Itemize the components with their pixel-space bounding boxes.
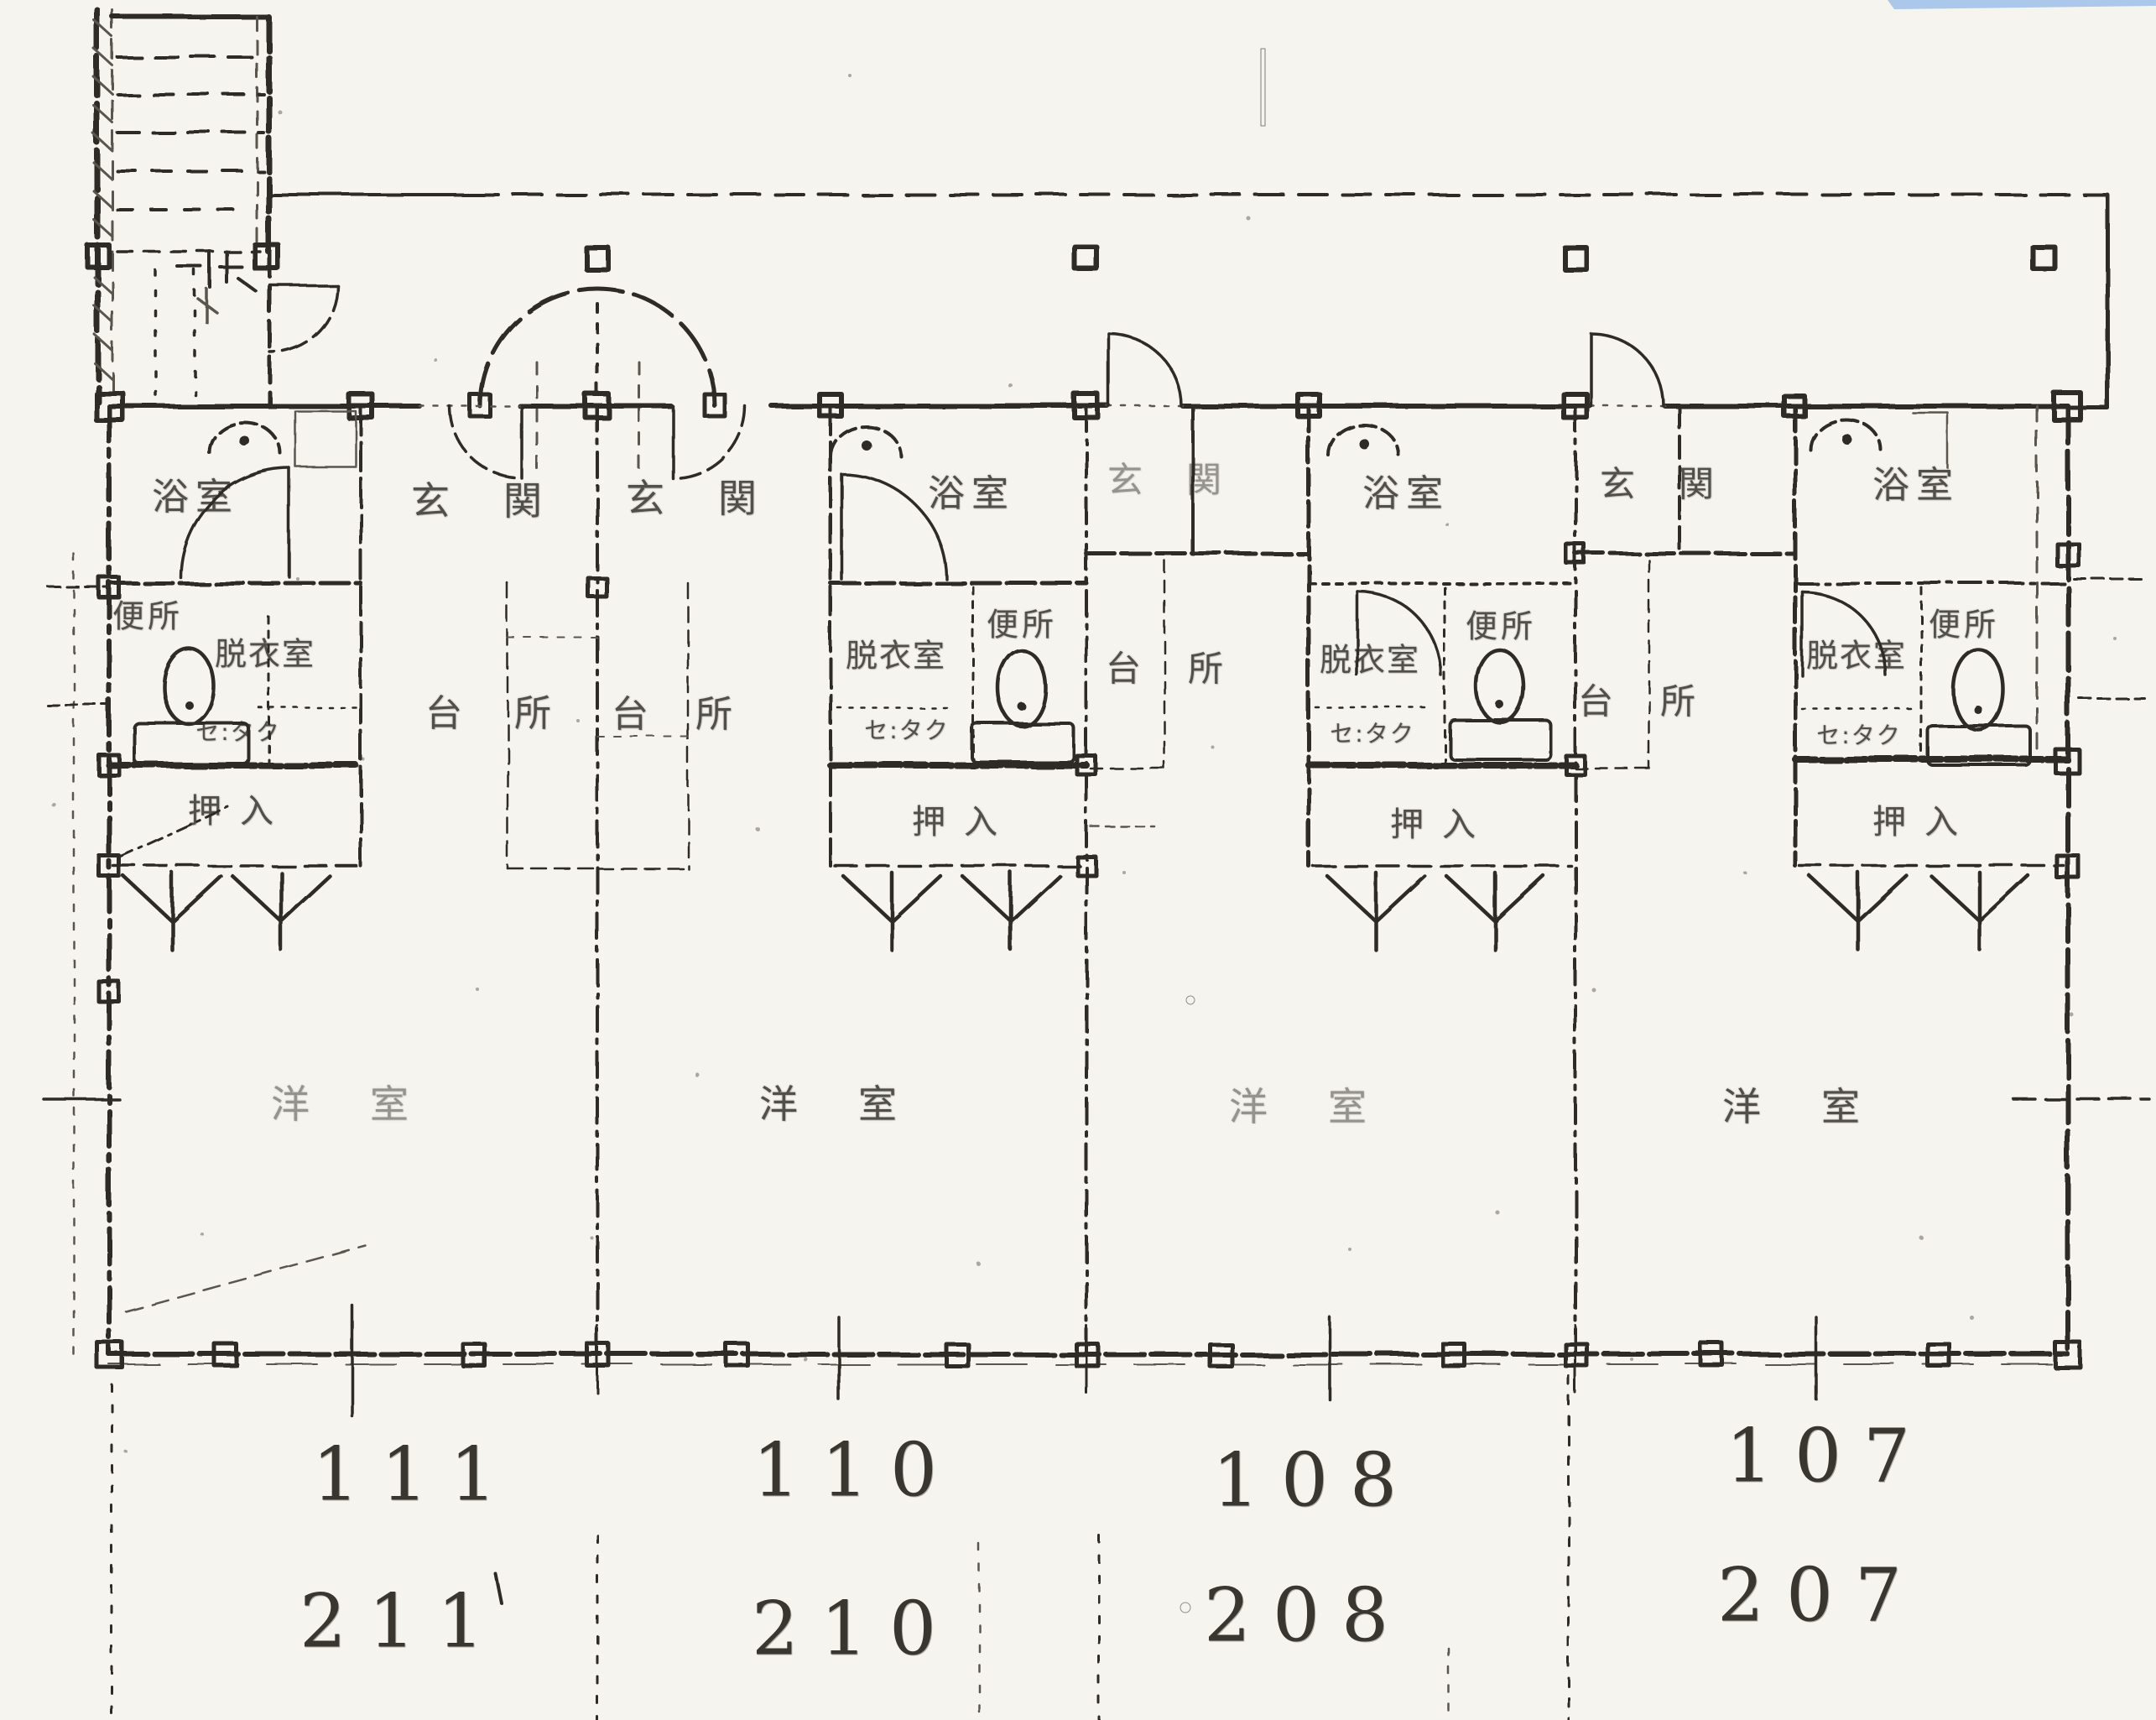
closet-label-111: 押入: [188, 784, 292, 832]
toilet-label-111: 便所: [112, 591, 183, 637]
floor-plan-page: 浴室玄関便所脱衣室セ:タク台所押入洋室玄関浴室脱衣室便所セ:タク台所押入洋室玄関…: [0, 0, 2156, 1720]
toilet-label-107: 便所: [1929, 599, 1999, 645]
closet-label-108: 押入: [1390, 797, 1494, 846]
toilet-label-108: 便所: [1466, 601, 1536, 647]
closet-label-107: 押入: [1872, 795, 1976, 843]
kitchen-label-107: 台所: [1578, 674, 1742, 725]
unit-number-207: 207: [1717, 1552, 1924, 1639]
unit-number-107: 107: [1726, 1413, 1932, 1499]
western-room-label-108: 洋室: [1229, 1076, 1427, 1132]
entrance-label-110: 玄関: [626, 468, 810, 524]
laundry-note-110: セ:タク: [864, 712, 949, 746]
unit-number-210: 210: [752, 1586, 958, 1672]
kitchen-label-110: 台所: [612, 684, 779, 738]
unit-number-111: 111: [312, 1431, 518, 1518]
bath-label-107: 浴室: [1872, 455, 1960, 508]
unit-number-211: 211: [299, 1578, 506, 1665]
unit-number-110: 110: [753, 1427, 959, 1514]
entrance-label-111: 玄関: [411, 471, 596, 526]
unit-number-208: 208: [1204, 1572, 1410, 1659]
western-room-label-111: 洋室: [271, 1074, 469, 1129]
bath-label-111: 浴室: [152, 466, 239, 520]
unit-number-108: 108: [1212, 1437, 1419, 1524]
western-room-label-110: 洋室: [759, 1074, 957, 1129]
dressing-room-label-111: 脱衣室: [215, 628, 315, 675]
dressing-room-label-110: 脱衣室: [846, 630, 946, 676]
entrance-label-107: 玄関: [1600, 456, 1758, 508]
laundry-note-111: セ:タク: [195, 714, 280, 748]
western-room-label-107: 洋室: [1722, 1076, 1920, 1132]
dressing-room-label-108: 脱衣室: [1320, 634, 1420, 680]
laundry-note-108: セ:タク: [1330, 716, 1414, 749]
kitchen-label-108: 台所: [1106, 641, 1270, 692]
kitchen-label-111: 台所: [425, 683, 603, 737]
entrance-label-108: 玄関: [1107, 452, 1265, 503]
laundry-note-107: セ:タク: [1816, 717, 1901, 751]
bath-label-110: 浴室: [928, 463, 1015, 517]
closet-label-110: 押入: [912, 795, 1016, 843]
bath-label-108: 浴室: [1362, 463, 1450, 517]
toilet-label-110: 便所: [987, 599, 1057, 645]
labels-layer: 浴室玄関便所脱衣室セ:タク台所押入洋室玄関浴室脱衣室便所セ:タク台所押入洋室玄関…: [0, 0, 2156, 1720]
dressing-room-label-107: 脱衣室: [1806, 630, 1907, 676]
